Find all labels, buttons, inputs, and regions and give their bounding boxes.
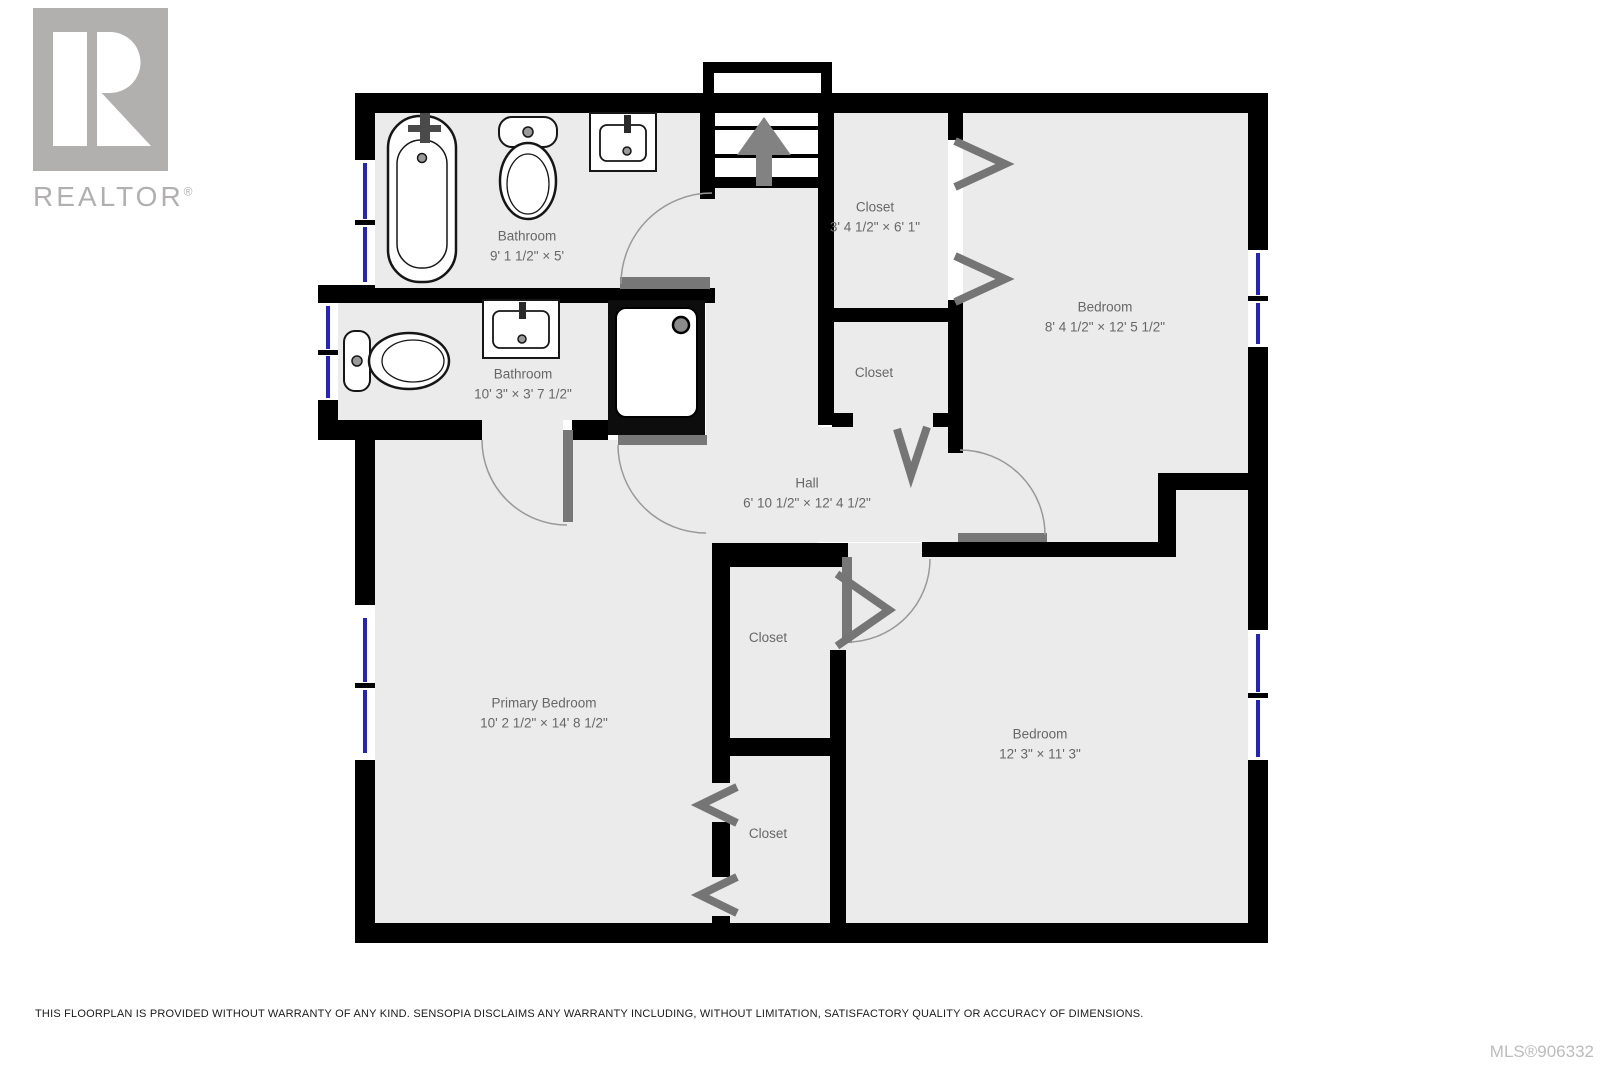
window-bathroom-2 xyxy=(318,303,338,400)
toilet-bathroom-2 xyxy=(344,331,449,391)
window-bathroom-1 xyxy=(355,160,375,285)
floorplan-page: REALTOR® xyxy=(0,0,1600,1066)
toilet-bathroom-1 xyxy=(499,117,557,219)
floor-plan xyxy=(0,0,1600,1066)
door-leaf-bathroom-1 xyxy=(620,277,710,289)
window-bedroom-2 xyxy=(1248,630,1268,760)
window-bedroom-1 xyxy=(1248,250,1268,347)
door-leaf-bedroom-1 xyxy=(958,533,1047,542)
disclaimer-text: THIS FLOORPLAN IS PROVIDED WITHOUT WARRA… xyxy=(35,1008,1144,1020)
bathtub xyxy=(388,113,456,282)
room-floors xyxy=(338,113,1248,923)
sink-bathroom-2 xyxy=(483,300,559,358)
mls-number: MLS®906332 xyxy=(1490,1042,1594,1062)
door-leaf-bedroom-2 xyxy=(842,557,852,643)
door-leaf-primary-bedroom xyxy=(563,430,573,522)
window-primary-bedroom xyxy=(355,605,375,760)
door-leaf-bathroom-2 xyxy=(618,435,707,445)
sink-bathroom-1 xyxy=(590,113,656,171)
shower xyxy=(608,300,705,435)
